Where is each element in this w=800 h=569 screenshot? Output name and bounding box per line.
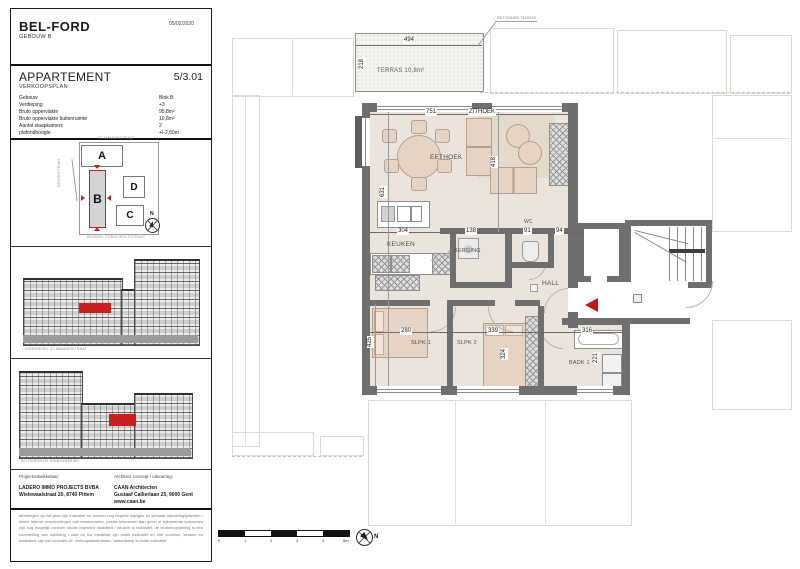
- dimension-line: [388, 112, 389, 386]
- dim-zithoek-depth: 418: [491, 156, 498, 168]
- dim-living-width: 751: [425, 109, 437, 116]
- sheet-title: APPARTEMENT: [19, 70, 111, 84]
- red-tick: [107, 195, 111, 201]
- divider: [11, 64, 211, 66]
- wall: [622, 318, 630, 395]
- adjacent-structure: [617, 30, 727, 94]
- structure-below: [368, 400, 632, 526]
- dim-badk-depth: 221: [593, 352, 600, 364]
- elevator-shaft: [578, 223, 625, 282]
- drawing-date: 05/02/2020: [169, 21, 194, 27]
- chair: [437, 159, 452, 173]
- structure-below-line: [455, 400, 456, 524]
- site-boundary-edge: [71, 159, 77, 201]
- info-label: Gebouw: [19, 96, 38, 101]
- info-value: 10,8m²: [159, 117, 175, 122]
- architect-name: CAAN Architecten: [114, 485, 157, 491]
- wall: [568, 103, 578, 232]
- partition-wall: [450, 300, 495, 306]
- toilet: [522, 241, 539, 262]
- entrance-door-opening: [568, 288, 578, 312]
- structure-below-line: [545, 400, 546, 524]
- street-label-bottom: HENDRIK CONSCIENCESTRAAT: [66, 235, 166, 239]
- sofa: [466, 118, 492, 176]
- dim-berging-width: 138: [465, 228, 477, 235]
- dim-wc-width: 91: [523, 228, 532, 235]
- scalebar-tick: 4: [322, 538, 324, 543]
- apartment-number: 5/3.01: [174, 71, 203, 83]
- site-block-d: D: [123, 176, 145, 198]
- info-value: 2: [159, 124, 162, 129]
- red-tick: [94, 227, 100, 231]
- dim-living-height: 631: [380, 186, 387, 198]
- adjacent-structure: [730, 35, 792, 94]
- elevation-rear-groundfloor: [19, 448, 191, 456]
- site-block-b-highlighted: B: [89, 170, 106, 228]
- scale-bar: 0 1 2 3 4 5m: [218, 530, 350, 537]
- adjacent-structure-line: [712, 138, 790, 139]
- entrance-arrow: [585, 298, 598, 312]
- floor-plan: 494 218 TERRAS 10,8m² BETONNEN TERRAS: [225, 8, 795, 560]
- room-label-zithoek: ZITHOEK: [468, 109, 496, 116]
- dim-slpk1-width: 280: [400, 328, 412, 335]
- sink: [411, 206, 422, 222]
- wall: [568, 232, 578, 288]
- info-label: plafondhoogte: [19, 131, 51, 136]
- building-subtitle: GEBOUW B: [19, 34, 52, 40]
- window: [377, 386, 441, 395]
- drawing-sheet: BEL-FORD GEBOUW B 05/02/2020 APPARTEMENT…: [0, 0, 800, 569]
- highlight-unit-rear: [109, 414, 136, 426]
- scalebar-segment: [323, 531, 349, 536]
- scalebar-segment: [245, 531, 271, 536]
- scalebar-tick: 3: [296, 538, 298, 543]
- info-label: Bruto oppervlakte buitenruimte: [19, 117, 87, 122]
- elevator-door: [591, 275, 607, 282]
- divider: [11, 508, 211, 510]
- developer-name: LADERO IMMO PROJECTS BVBA: [19, 485, 99, 491]
- dim-terrace-depth: 218: [359, 58, 366, 70]
- scalebar-tick: 2: [270, 538, 272, 543]
- street-label-left: NOORDSTRAAT: [57, 158, 61, 187]
- elevation-front-groundfloor: [23, 335, 198, 343]
- adjacent-structure: [490, 28, 614, 94]
- window: [577, 386, 613, 395]
- red-tick: [94, 165, 100, 169]
- scalebar-segment: [219, 531, 245, 536]
- wall: [562, 318, 630, 325]
- street-label-top: ST-AMANDSSTRAAT: [66, 136, 166, 140]
- adjacent-structure-line: [245, 95, 246, 445]
- dim-gang-width: 94: [555, 228, 564, 235]
- scalebar-segment: [297, 531, 323, 536]
- red-tick: [81, 195, 85, 201]
- site-block-c: C: [116, 205, 144, 226]
- adjacent-structure: [712, 95, 792, 232]
- window: [457, 386, 519, 395]
- room-label-slpk2: SLPK 2: [457, 340, 477, 346]
- info-label: Bruto oppervlakte: [19, 110, 58, 115]
- partition-wall: [548, 234, 554, 268]
- exterior-shade-panel: [355, 116, 362, 168]
- adjacent-structure: [232, 95, 260, 447]
- architect-address: Gustaaf Callierlaan 25, 9000 Gent: [114, 492, 193, 498]
- dimension-line: [375, 304, 376, 386]
- room-label-eethoek: EETHOEK: [430, 154, 462, 161]
- partition-wall: [362, 300, 430, 306]
- info-value: +3: [159, 103, 165, 108]
- project-title: BEL-FORD: [19, 19, 90, 34]
- room-label-hall: HALL: [542, 280, 559, 287]
- divider: [11, 469, 211, 470]
- site-block-a: A: [81, 145, 123, 167]
- room-label-berging: BERGING: [454, 248, 481, 254]
- corridor-fixture: [633, 294, 642, 303]
- chair: [435, 129, 450, 143]
- north-label: N: [374, 534, 378, 540]
- adjacent-structure: [712, 320, 792, 410]
- highlight-unit-front: [79, 303, 111, 313]
- room-label-keuken: KEUKEN: [387, 241, 415, 248]
- dimension-line: [498, 112, 499, 232]
- chair: [382, 129, 397, 143]
- north-compass-icon: [356, 529, 373, 546]
- room-label-slpk1: SLPK 1: [411, 340, 431, 346]
- elevation-rear-caption: ACHTERGEVEL BINNENGEBIED: [21, 459, 79, 463]
- built-in-closet: [549, 123, 570, 186]
- disclaimer-text: afmetingen op het plan zijn indicatief e…: [19, 513, 203, 544]
- scalebar-tick: 5m: [343, 538, 349, 543]
- terrace: [355, 33, 484, 92]
- dimension-line: [356, 45, 482, 46]
- corridor-wall: [630, 318, 690, 324]
- elevation-front-tower: [134, 259, 200, 346]
- developer-heading: Projectontwikkelaar:: [19, 474, 59, 479]
- info-value: 95,8m²: [159, 110, 175, 115]
- hall-fixture: [530, 284, 538, 292]
- scalebar-tick: 0: [218, 538, 220, 543]
- partition-wall: [450, 282, 511, 288]
- terrace-note: BETONNEN TERRAS: [497, 15, 536, 20]
- note-leader-line: [495, 21, 537, 22]
- site-compass-icon: [145, 218, 160, 233]
- dim-badk-width: 316: [581, 328, 593, 335]
- info-label: Verdieping: [19, 103, 43, 108]
- chair: [411, 120, 427, 134]
- partition-wall: [515, 300, 540, 306]
- info-label: Aantal slaapkamers: [19, 124, 63, 129]
- property-dashed-line: [480, 92, 790, 93]
- room-label-badk1: BADK 1: [569, 360, 590, 366]
- elevation-rear-left-tower: [19, 371, 83, 459]
- title-block: BEL-FORD GEBOUW B 05/02/2020 APPARTEMENT…: [10, 8, 212, 562]
- stair-landing: [669, 249, 705, 253]
- adjacent-structure: [232, 432, 314, 456]
- appliance: [391, 255, 410, 273]
- window: [362, 118, 370, 166]
- developer-address: Wielewaalstraat 20, 8740 Pittem: [19, 492, 94, 498]
- elevation-front-caption: VOORGEVEL ST-AMANDSSTRAAT: [25, 347, 87, 351]
- sheet-subtitle: VERKOOPSPLAN: [19, 84, 68, 90]
- dim-slpk1-height: 425: [367, 336, 374, 348]
- washbasin: [602, 354, 622, 373]
- divider: [11, 246, 211, 247]
- info-value: Blok B: [159, 96, 173, 101]
- room-label-wc: WC: [524, 219, 533, 225]
- adjacent-structure-line: [292, 38, 293, 95]
- dim-slpk2-height: 324: [501, 348, 508, 360]
- window: [492, 103, 562, 112]
- adjacent-structure: [320, 436, 364, 456]
- adjacent-structure: [232, 38, 354, 97]
- partition-wall: [512, 262, 548, 268]
- partition-wall: [450, 234, 456, 288]
- architect-heading: Architect concept / uitvoering:: [114, 474, 173, 479]
- wardrobe: [375, 275, 420, 291]
- site-north-label: N: [150, 211, 154, 217]
- partition-wall: [538, 306, 544, 386]
- room-label-terras: TERRAS 10,8m²: [377, 68, 424, 74]
- dim-slpk2-width: 339: [487, 328, 499, 335]
- property-dashed-line: [232, 456, 362, 457]
- bathtub-inner: [578, 333, 619, 345]
- chair: [384, 159, 399, 173]
- armchair: [518, 141, 542, 165]
- partition-wall: [447, 300, 453, 386]
- sink: [397, 206, 411, 222]
- divider: [11, 358, 211, 359]
- dim-keuken-width: 304: [397, 228, 409, 235]
- architect-website: www.caan.be: [114, 499, 146, 505]
- dim-terrace-width: 494: [403, 37, 415, 44]
- partition-wall: [505, 234, 512, 288]
- scalebar-segment: [271, 531, 297, 536]
- scalebar-tick: 1: [244, 538, 246, 543]
- chair: [411, 177, 427, 191]
